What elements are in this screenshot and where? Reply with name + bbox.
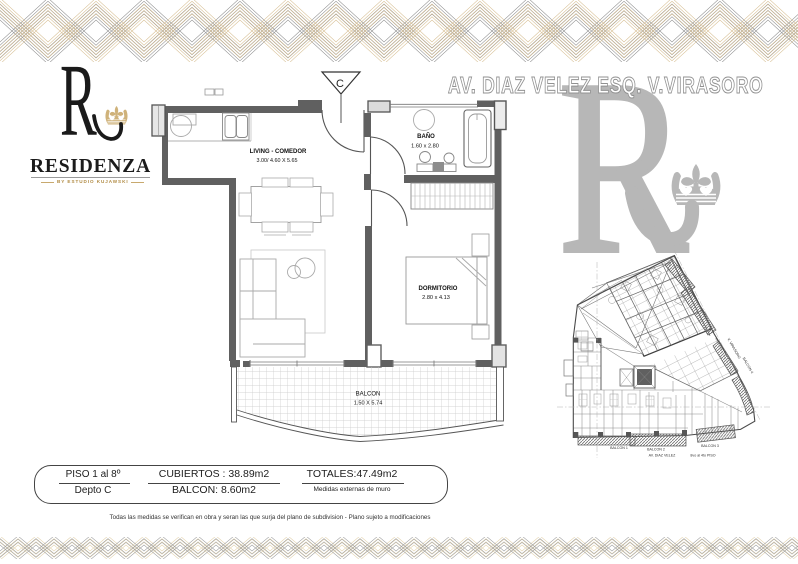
svg-text:C: C (336, 78, 344, 90)
svg-text:DORMITORIO: DORMITORIO (419, 286, 458, 292)
svg-text:3.00/ 4.60 X 5.65: 3.00/ 4.60 X 5.65 (256, 158, 297, 164)
svg-text:1.60 x 2.80: 1.60 x 2.80 (411, 144, 439, 150)
svg-text:BALCON 4: BALCON 4 (742, 357, 754, 374)
svg-text:BALCON 2: BALCON 2 (647, 448, 665, 452)
svg-text:1.50 X 5.74: 1.50 X 5.74 (354, 401, 383, 407)
svg-text:LIVING - COMEDOR: LIVING - COMEDOR (250, 149, 307, 155)
svg-text:2.80 x 4.13: 2.80 x 4.13 (422, 295, 450, 301)
svg-text:AV. DIAZ VELEZ: AV. DIAZ VELEZ (649, 454, 677, 458)
svg-text:8vo al 4to PISO: 8vo al 4to PISO (690, 454, 715, 458)
svg-text:BALCON 1: BALCON 1 (610, 446, 628, 450)
svg-text:BAÑO: BAÑO (417, 133, 435, 140)
svg-text:BALCON 3: BALCON 3 (701, 444, 719, 448)
svg-text:BALCON: BALCON (356, 392, 381, 398)
